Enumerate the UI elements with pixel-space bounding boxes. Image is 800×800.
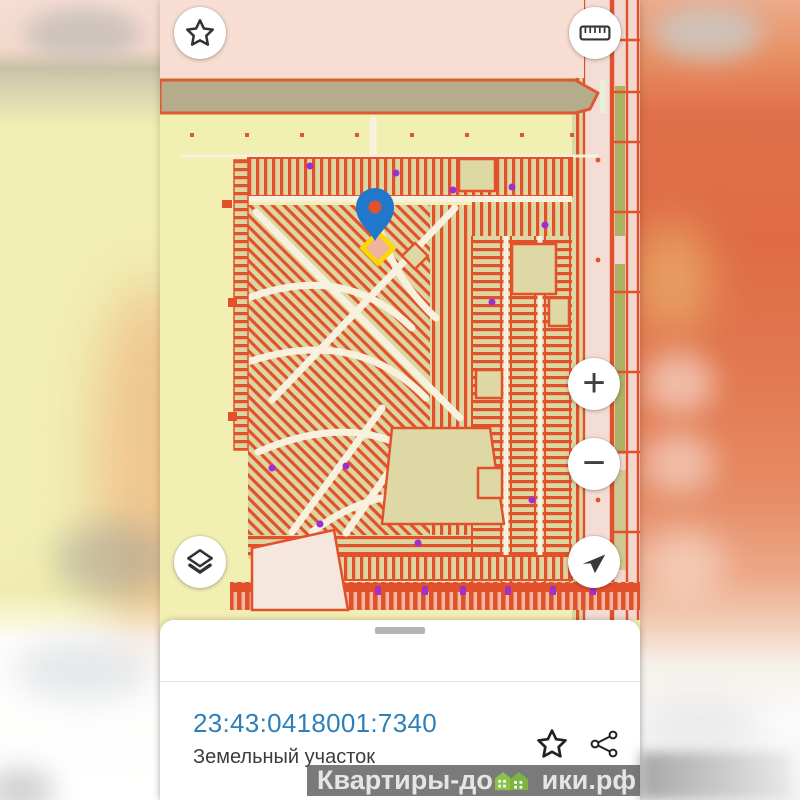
blur-blob [640, 695, 760, 755]
drag-handle[interactable] [375, 627, 425, 634]
compass-button[interactable] [568, 536, 620, 588]
watermark-blur-ghost [640, 752, 790, 800]
favorite-parcel-button[interactable] [534, 726, 570, 762]
blur-blob [55, 522, 160, 597]
blur-blob [643, 352, 715, 414]
blur-blob [15, 640, 150, 700]
screen: + − 23:43:0418001:7340 Земельный участок [0, 0, 800, 800]
plus-icon: + [582, 363, 605, 403]
zoom-in-button[interactable]: + [568, 358, 620, 410]
blur-blob [0, 768, 55, 800]
house-icon [494, 767, 541, 794]
star-icon [184, 17, 216, 49]
favorites-button[interactable] [174, 7, 226, 59]
divider [160, 681, 640, 682]
share-button[interactable] [586, 726, 622, 762]
layers-button[interactable] [174, 536, 226, 588]
blur-blob [652, 5, 762, 60]
blurred-right-margin [640, 0, 800, 800]
blurred-left-margin [0, 0, 160, 800]
sheet-actions [534, 726, 622, 762]
cadastral-number-link[interactable]: 23:43:0418001:7340 [193, 708, 437, 739]
cadastral-map [160, 0, 640, 620]
zoom-out-button[interactable]: − [568, 438, 620, 490]
blur-blob [25, 8, 140, 60]
navigation-arrow-icon [579, 547, 609, 577]
star-outline-icon [535, 727, 569, 761]
parcel-info: 23:43:0418001:7340 Земельный участок [193, 708, 437, 769]
blur-blob [643, 432, 715, 494]
site-watermark: Квартиры-до ики.рф [307, 765, 640, 796]
watermark-text-right: ики.рф [542, 765, 636, 796]
watermark-text-left: Квартиры-до [317, 765, 493, 796]
layers-icon [183, 545, 217, 579]
share-icon [588, 728, 620, 760]
app-window: + − 23:43:0418001:7340 Земельный участок [160, 0, 640, 800]
blur-blob [640, 220, 710, 335]
ruler-icon [579, 24, 611, 42]
minus-icon: − [582, 443, 605, 483]
blur-blob [643, 528, 725, 598]
map-canvas[interactable] [160, 0, 640, 620]
measure-button[interactable] [569, 7, 621, 59]
